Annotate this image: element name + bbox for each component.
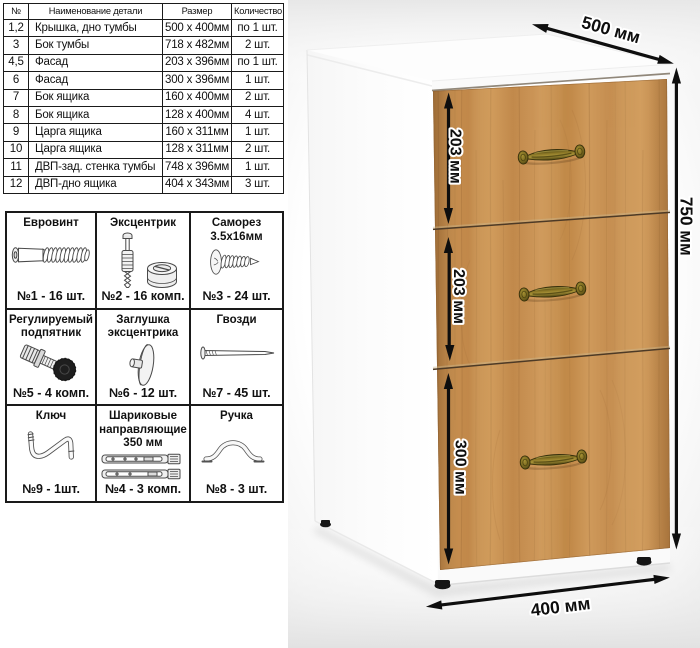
svg-text:300 мм: 300 мм bbox=[451, 440, 468, 495]
svg-text:750 мм: 750 мм bbox=[677, 197, 697, 256]
svg-text:203 мм: 203 мм bbox=[450, 269, 467, 324]
svg-text:203 мм: 203 мм bbox=[446, 129, 463, 184]
